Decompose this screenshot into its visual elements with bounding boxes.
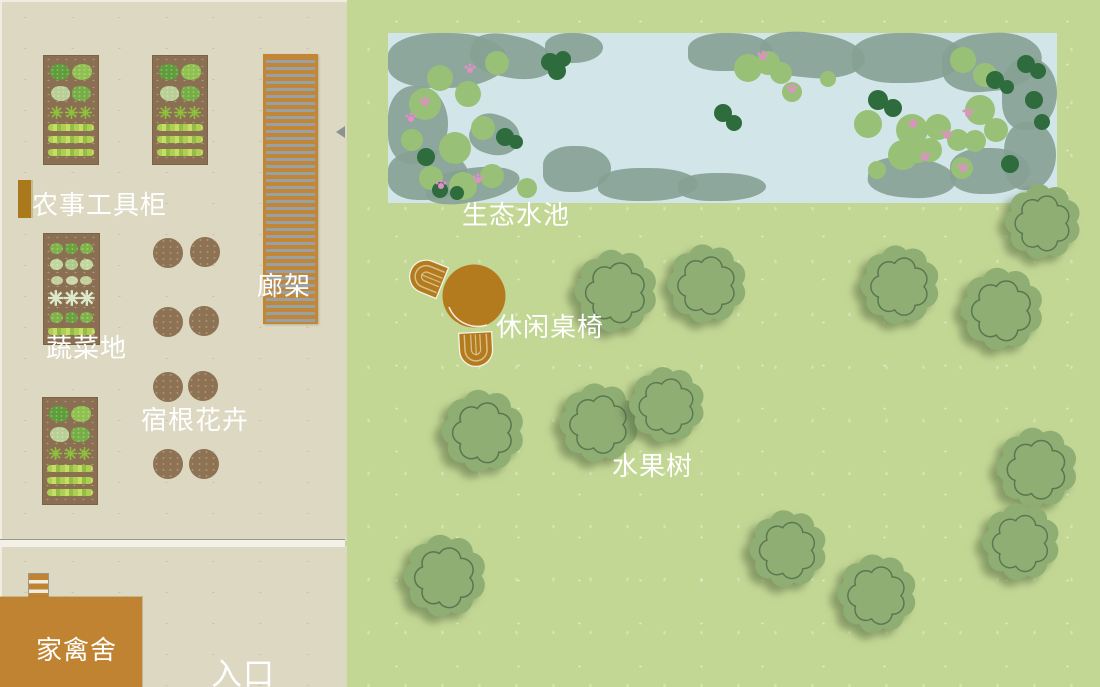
lily-pad [868, 161, 886, 179]
fruit-tree [954, 258, 1050, 354]
pink-flower [760, 54, 766, 60]
lily-pad [820, 71, 836, 87]
pink-flower [467, 67, 473, 73]
label-perennial-flowers: 宿根花卉 [141, 407, 249, 436]
label-leisure-table: 休闲桌椅 [496, 314, 604, 343]
foliage-blob [509, 135, 523, 149]
foliage-blob [1030, 63, 1046, 79]
flower-planter [190, 237, 220, 267]
panel-divider [0, 539, 345, 547]
lily-pad [439, 132, 471, 164]
bed-row-spiky3 [157, 106, 203, 119]
pink-flower [960, 166, 966, 172]
fruit-tree [999, 175, 1087, 263]
foliage-blob [450, 186, 464, 200]
bed-row-bush2a [47, 406, 93, 422]
bed-row-sprig3 [48, 276, 95, 285]
label-tool-cabinet: 农事工具柜 [32, 192, 167, 221]
lily-pad [455, 81, 481, 107]
bed-row-lettuce3 [48, 312, 95, 323]
label-vegetable-plot: 蔬菜地 [46, 335, 127, 364]
bed-row-strip [157, 124, 203, 131]
bed-row-bush2b [48, 86, 94, 101]
bed-row-lettuce3pale [48, 259, 95, 270]
garden-bed [43, 55, 99, 165]
fruit-tree [397, 525, 493, 621]
pink-flower [910, 122, 916, 128]
foliage-blob [1025, 91, 1043, 109]
pink-flower [438, 183, 444, 189]
tool-cabinet [18, 180, 33, 218]
bed-row-bush2b [47, 427, 93, 442]
bed-row-strip [157, 136, 203, 143]
bed-row-bush2a [157, 64, 203, 80]
foliage-blob [1000, 80, 1014, 94]
lily-pad [854, 110, 882, 138]
pink-flower [965, 111, 971, 117]
bed-row-strip [47, 465, 93, 472]
lily-pad [480, 164, 504, 188]
pink-flower [475, 177, 481, 183]
flower-planter [153, 307, 183, 337]
bed-row-spiky3 [48, 106, 94, 119]
bed-row-strip [48, 124, 94, 131]
bed-row-strip [48, 149, 94, 156]
lily-pad [485, 51, 509, 75]
label-eco-pond: 生态水池 [462, 202, 570, 231]
pink-flower [422, 100, 428, 106]
foliage-blob [548, 62, 566, 80]
flower-planter [153, 372, 183, 402]
leisure-chair [452, 326, 500, 372]
fruit-tree [976, 494, 1066, 584]
lily-pad [427, 65, 453, 91]
fruit-tree [435, 380, 531, 476]
gate-marker [336, 126, 345, 138]
bed-row-strip [157, 149, 203, 156]
foliage-blob [726, 115, 742, 131]
fruit-tree [831, 545, 923, 637]
flower-planter [153, 449, 183, 479]
bed-row-bush2b [157, 86, 203, 101]
flower-planter [153, 238, 183, 268]
lily-pad [947, 129, 969, 151]
bed-row-strip [47, 489, 93, 496]
fruit-tree [661, 235, 753, 327]
lily-pad [888, 140, 918, 170]
foliage-blob [417, 148, 435, 166]
pink-flower [922, 155, 928, 161]
map-layer [0, 0, 1100, 687]
label-poultry-house: 家禽舍 [36, 637, 117, 666]
lily-pad [517, 178, 537, 198]
pink-flower [408, 116, 414, 122]
label-pergola: 廊架 [257, 273, 311, 302]
flower-planter [189, 449, 219, 479]
fruit-tree [854, 236, 946, 328]
label-fruit-trees: 水果树 [612, 453, 693, 482]
lily-pad [984, 118, 1008, 142]
flower-planter [189, 306, 219, 336]
fruit-tree [623, 358, 711, 446]
bed-row-strip [48, 136, 94, 143]
foliage-blob [884, 99, 902, 117]
bed-row-star3 [48, 290, 95, 306]
lily-pad [770, 62, 792, 84]
fruit-tree [743, 501, 833, 591]
bed-row-lettuce3 [48, 243, 95, 254]
lily-pad [401, 129, 423, 151]
foliage-blob [1034, 114, 1050, 130]
bed-row-bush2a [48, 64, 94, 80]
garden-plan: 农事工具柜 廊架 蔬菜地 宿根花卉 家禽舍 入口 生态水池 休闲桌椅 水果树 [0, 0, 1100, 687]
flower-planter [188, 371, 218, 401]
bed-row-spiky3 [47, 447, 93, 460]
garden-bed [152, 55, 208, 165]
pink-flower [944, 133, 950, 139]
foliage-blob [1001, 155, 1019, 173]
lily-pad [471, 116, 495, 140]
bed-row-strip [47, 477, 93, 484]
label-entrance: 入口 [211, 658, 275, 687]
pink-flower [789, 87, 795, 93]
garden-bed [43, 233, 100, 345]
garden-bed [42, 397, 98, 505]
lily-pad [950, 47, 976, 73]
